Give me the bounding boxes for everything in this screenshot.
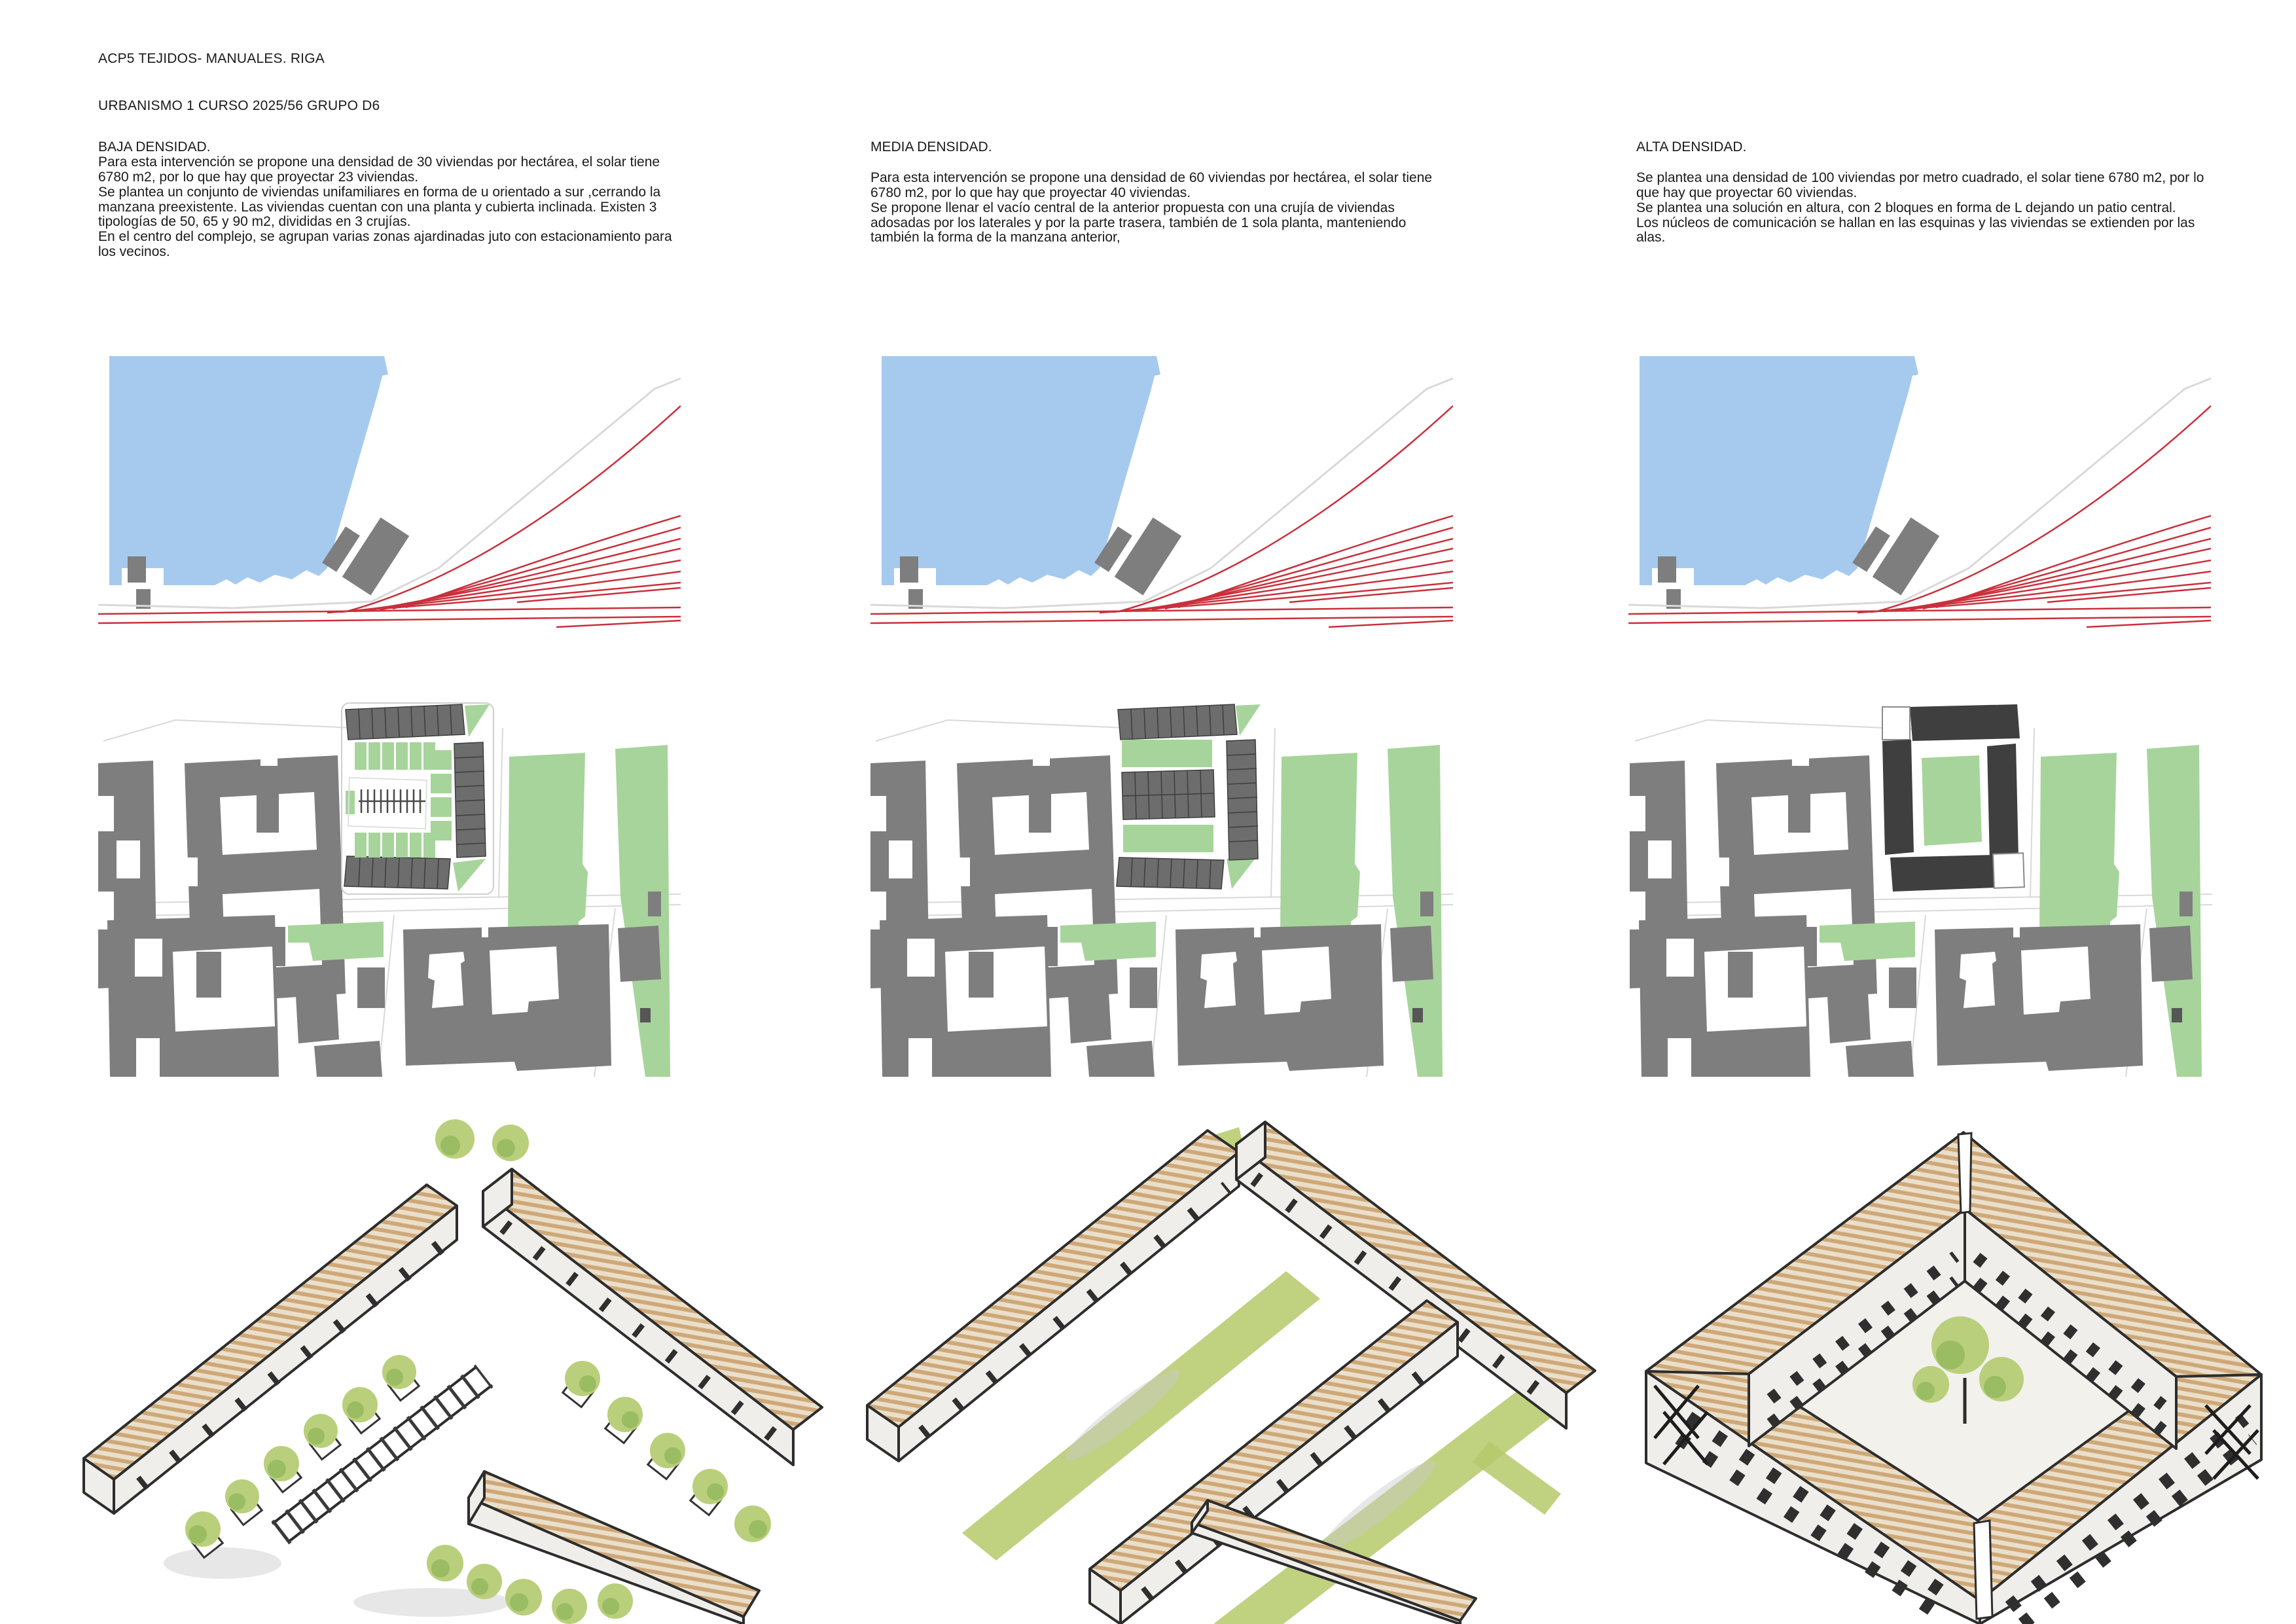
section-baja-densidad: BAJA DENSIDAD. Para esta intervención se… [98,140,684,260]
site-plan-media [870,700,1453,1079]
location-map-baja [98,352,681,632]
location-map-media [870,352,1453,632]
section-paragraph: Para esta intervención se propone una de… [98,155,684,185]
section-heading: ALTA DENSIDAD. [1636,140,2222,155]
presentation-board: ACP5 TEJIDOS- MANUALES. RIGA URBANISMO 1… [0,0,2296,1624]
section-heading: BAJA DENSIDAD. [98,140,684,155]
section-paragraph: Los núcleos de comunicación se hallan en… [1636,216,2222,246]
section-paragraph: Se plantea una solución en altura, con 2… [1636,201,2222,216]
axon-sketch-media [815,1075,1620,1624]
section-paragraph: En el centro del complejo, se agrupan va… [98,230,684,260]
location-map-alta [1628,352,2211,632]
section-paragraph: Se plantea una densidad de 100 viviendas… [1636,171,2222,201]
board-subtitle: URBANISMO 1 CURSO 2025/56 GRUPO D6 [98,98,380,114]
building-bar [1192,1500,1476,1624]
section-alta-densidad: ALTA DENSIDAD. Se plantea una densidad d… [1636,140,2222,245]
site-plan-alta [1630,700,2212,1079]
axon-sketch-baja [26,1105,864,1624]
parking-sketch [272,1367,492,1542]
site-plan-baja [98,700,681,1079]
section-paragraph: Se plantea un conjunto de viviendas unif… [98,185,684,230]
board-title: ACP5 TEJIDOS- MANUALES. RIGA [98,51,325,67]
building-bar [483,1169,822,1465]
section-heading: MEDIA DENSIDAD. [870,140,1456,155]
section-paragraph: Para esta intervención se propone una de… [870,171,1456,201]
section-media-densidad: MEDIA DENSIDAD. Para esta intervención s… [870,140,1456,245]
axon-sketch-alta [1564,1096,2296,1624]
building-bar [867,1130,1239,1461]
section-paragraph: Se propone llenar el vacío central de la… [870,201,1456,246]
